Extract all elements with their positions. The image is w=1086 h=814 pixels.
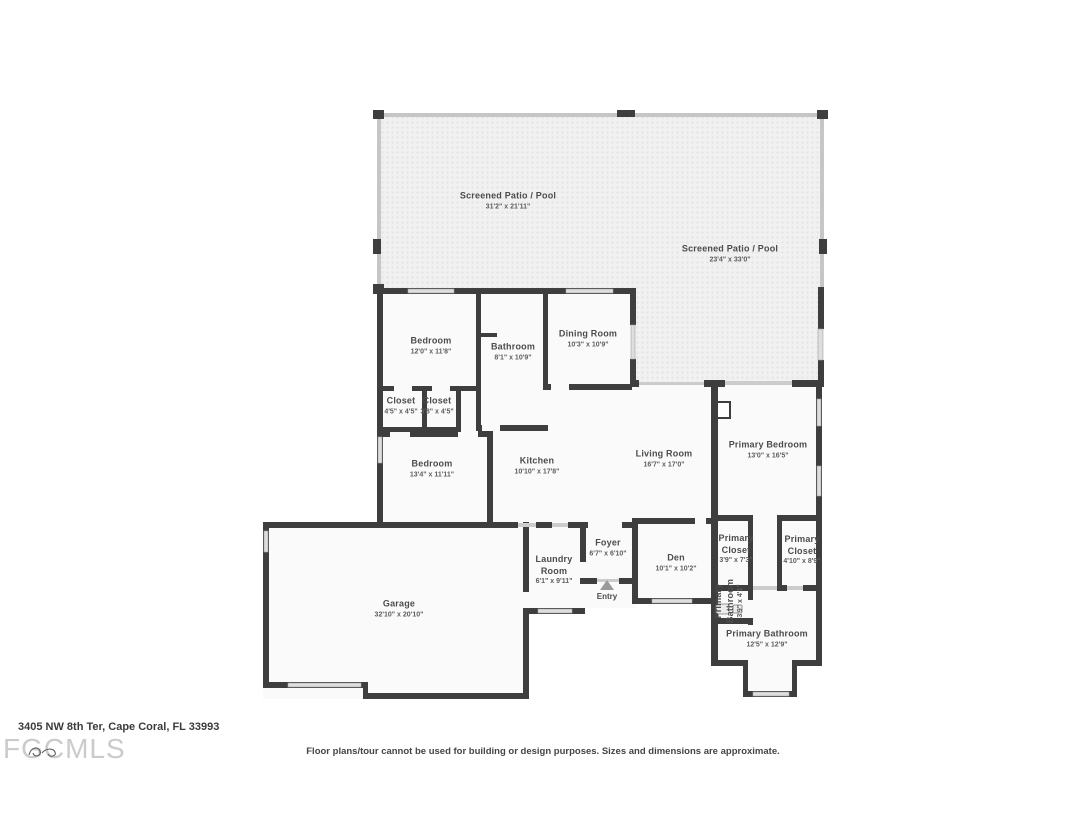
room-dims: 6'7" x 6'10"	[589, 549, 626, 558]
room-name: Living Room	[636, 449, 693, 461]
room-name: Closet	[420, 396, 453, 408]
room-dims: 3'9" x 4'1"	[736, 578, 745, 624]
room-label-screened-patio-2: Screened Patio / Pool 23'4" x 33'0"	[682, 244, 778, 265]
room-label-closet-2: Closet 3'8" x 4'5"	[420, 396, 453, 417]
room-dims: 10'1" x 10'2"	[655, 564, 696, 573]
room-name: Dining Room	[559, 329, 617, 341]
room-dims: 16'7" x 17'0"	[636, 460, 693, 469]
room-label-den: Den 10'1" x 10'2"	[655, 553, 696, 574]
entry-label: Entry	[597, 592, 617, 601]
room-label-laundry-room: Laundry Room 6'1" x 9'11"	[532, 554, 576, 586]
property-address: 3405 NW 8th Ter, Cape Coral, FL 33993	[18, 721, 219, 733]
room-name: Bedroom	[411, 336, 452, 348]
room-name: Foyer	[589, 538, 626, 550]
room-dims: 8'1" x 10'9"	[491, 353, 535, 362]
room-dims: 4'10" x 8'9"	[777, 557, 827, 566]
room-name: Kitchen	[514, 456, 559, 468]
room-dims: 32'10" x 20'10"	[375, 610, 424, 619]
room-name: Primary Closet	[777, 534, 827, 557]
room-name: Primary Bedroom	[729, 440, 808, 452]
room-name: Screened Patio / Pool	[460, 191, 556, 203]
room-name: Den	[655, 553, 696, 565]
room-label-foyer: Foyer 6'7" x 6'10"	[589, 538, 626, 559]
room-label-bathroom: Bathroom 8'1" x 10'9"	[491, 342, 535, 363]
room-dims: 31'2" x 21'11"	[460, 202, 556, 211]
room-dims: 12'5" x 12'9"	[726, 640, 808, 649]
room-name: Laundry Room	[532, 554, 576, 577]
room-label-primary-bathroom-small: Primary Bathroom 3'9" x 4'1"	[713, 578, 745, 624]
room-label-screened-patio-1: Screened Patio / Pool 31'2" x 21'11"	[460, 191, 556, 212]
room-label-garage: Garage 32'10" x 20'10"	[375, 599, 424, 620]
room-label-living-room: Living Room 16'7" x 17'0"	[636, 449, 693, 470]
room-label-dining-room: Dining Room 10'3" x 10'9"	[559, 329, 617, 350]
room-label-primary-bathroom: Primary Bathroom 12'5" x 12'9"	[726, 629, 808, 650]
logo-mark-overlay-icon	[26, 742, 62, 762]
room-name: Primary Bathroom	[713, 578, 736, 624]
disclaimer-text: Floor plans/tour cannot be used for buil…	[0, 746, 1086, 757]
room-label-bedroom-2: Bedroom 13'4" x 11'11"	[410, 459, 454, 480]
room-label-primary-closet-2: Primary Closet 4'10" x 8'9"	[777, 534, 827, 566]
room-dims: 10'3" x 10'9"	[559, 340, 617, 349]
room-name: Primary Closet	[711, 533, 761, 556]
room-dims: 3'9" x 7'3"	[711, 556, 761, 565]
room-dims: 10'10" x 17'8"	[514, 467, 559, 476]
room-dims: 12'0" x 11'8"	[411, 347, 452, 356]
room-label-primary-bedroom: Primary Bedroom 13'0" x 16'5"	[729, 440, 808, 461]
room-name: Primary Bathroom	[726, 629, 808, 641]
room-dims: 23'4" x 33'0"	[682, 255, 778, 264]
floor-plan-drawing	[0, 0, 1086, 814]
room-name: Screened Patio / Pool	[682, 244, 778, 256]
room-dims: 4'5" x 4'5"	[384, 407, 417, 416]
room-label-kitchen: Kitchen 10'10" x 17'8"	[514, 456, 559, 477]
wall-notch	[717, 402, 730, 418]
room-dims: 13'4" x 11'11"	[410, 470, 454, 479]
room-name: Garage	[375, 599, 424, 611]
room-dims: 3'8" x 4'5"	[420, 407, 453, 416]
floor-plan-page: Screened Patio / Pool 31'2" x 21'11" Scr…	[0, 0, 1086, 814]
room-label-bedroom-1: Bedroom 12'0" x 11'8"	[411, 336, 452, 357]
room-name: Closet	[384, 396, 417, 408]
room-dims: 13'0" x 16'5"	[729, 451, 808, 460]
room-name: Bathroom	[491, 342, 535, 354]
room-label-closet-1: Closet 4'5" x 4'5"	[384, 396, 417, 417]
room-name: Bedroom	[410, 459, 454, 471]
room-label-primary-closet-1: Primary Closet 3'9" x 7'3"	[711, 533, 761, 565]
room-dims: 6'1" x 9'11"	[532, 577, 576, 586]
